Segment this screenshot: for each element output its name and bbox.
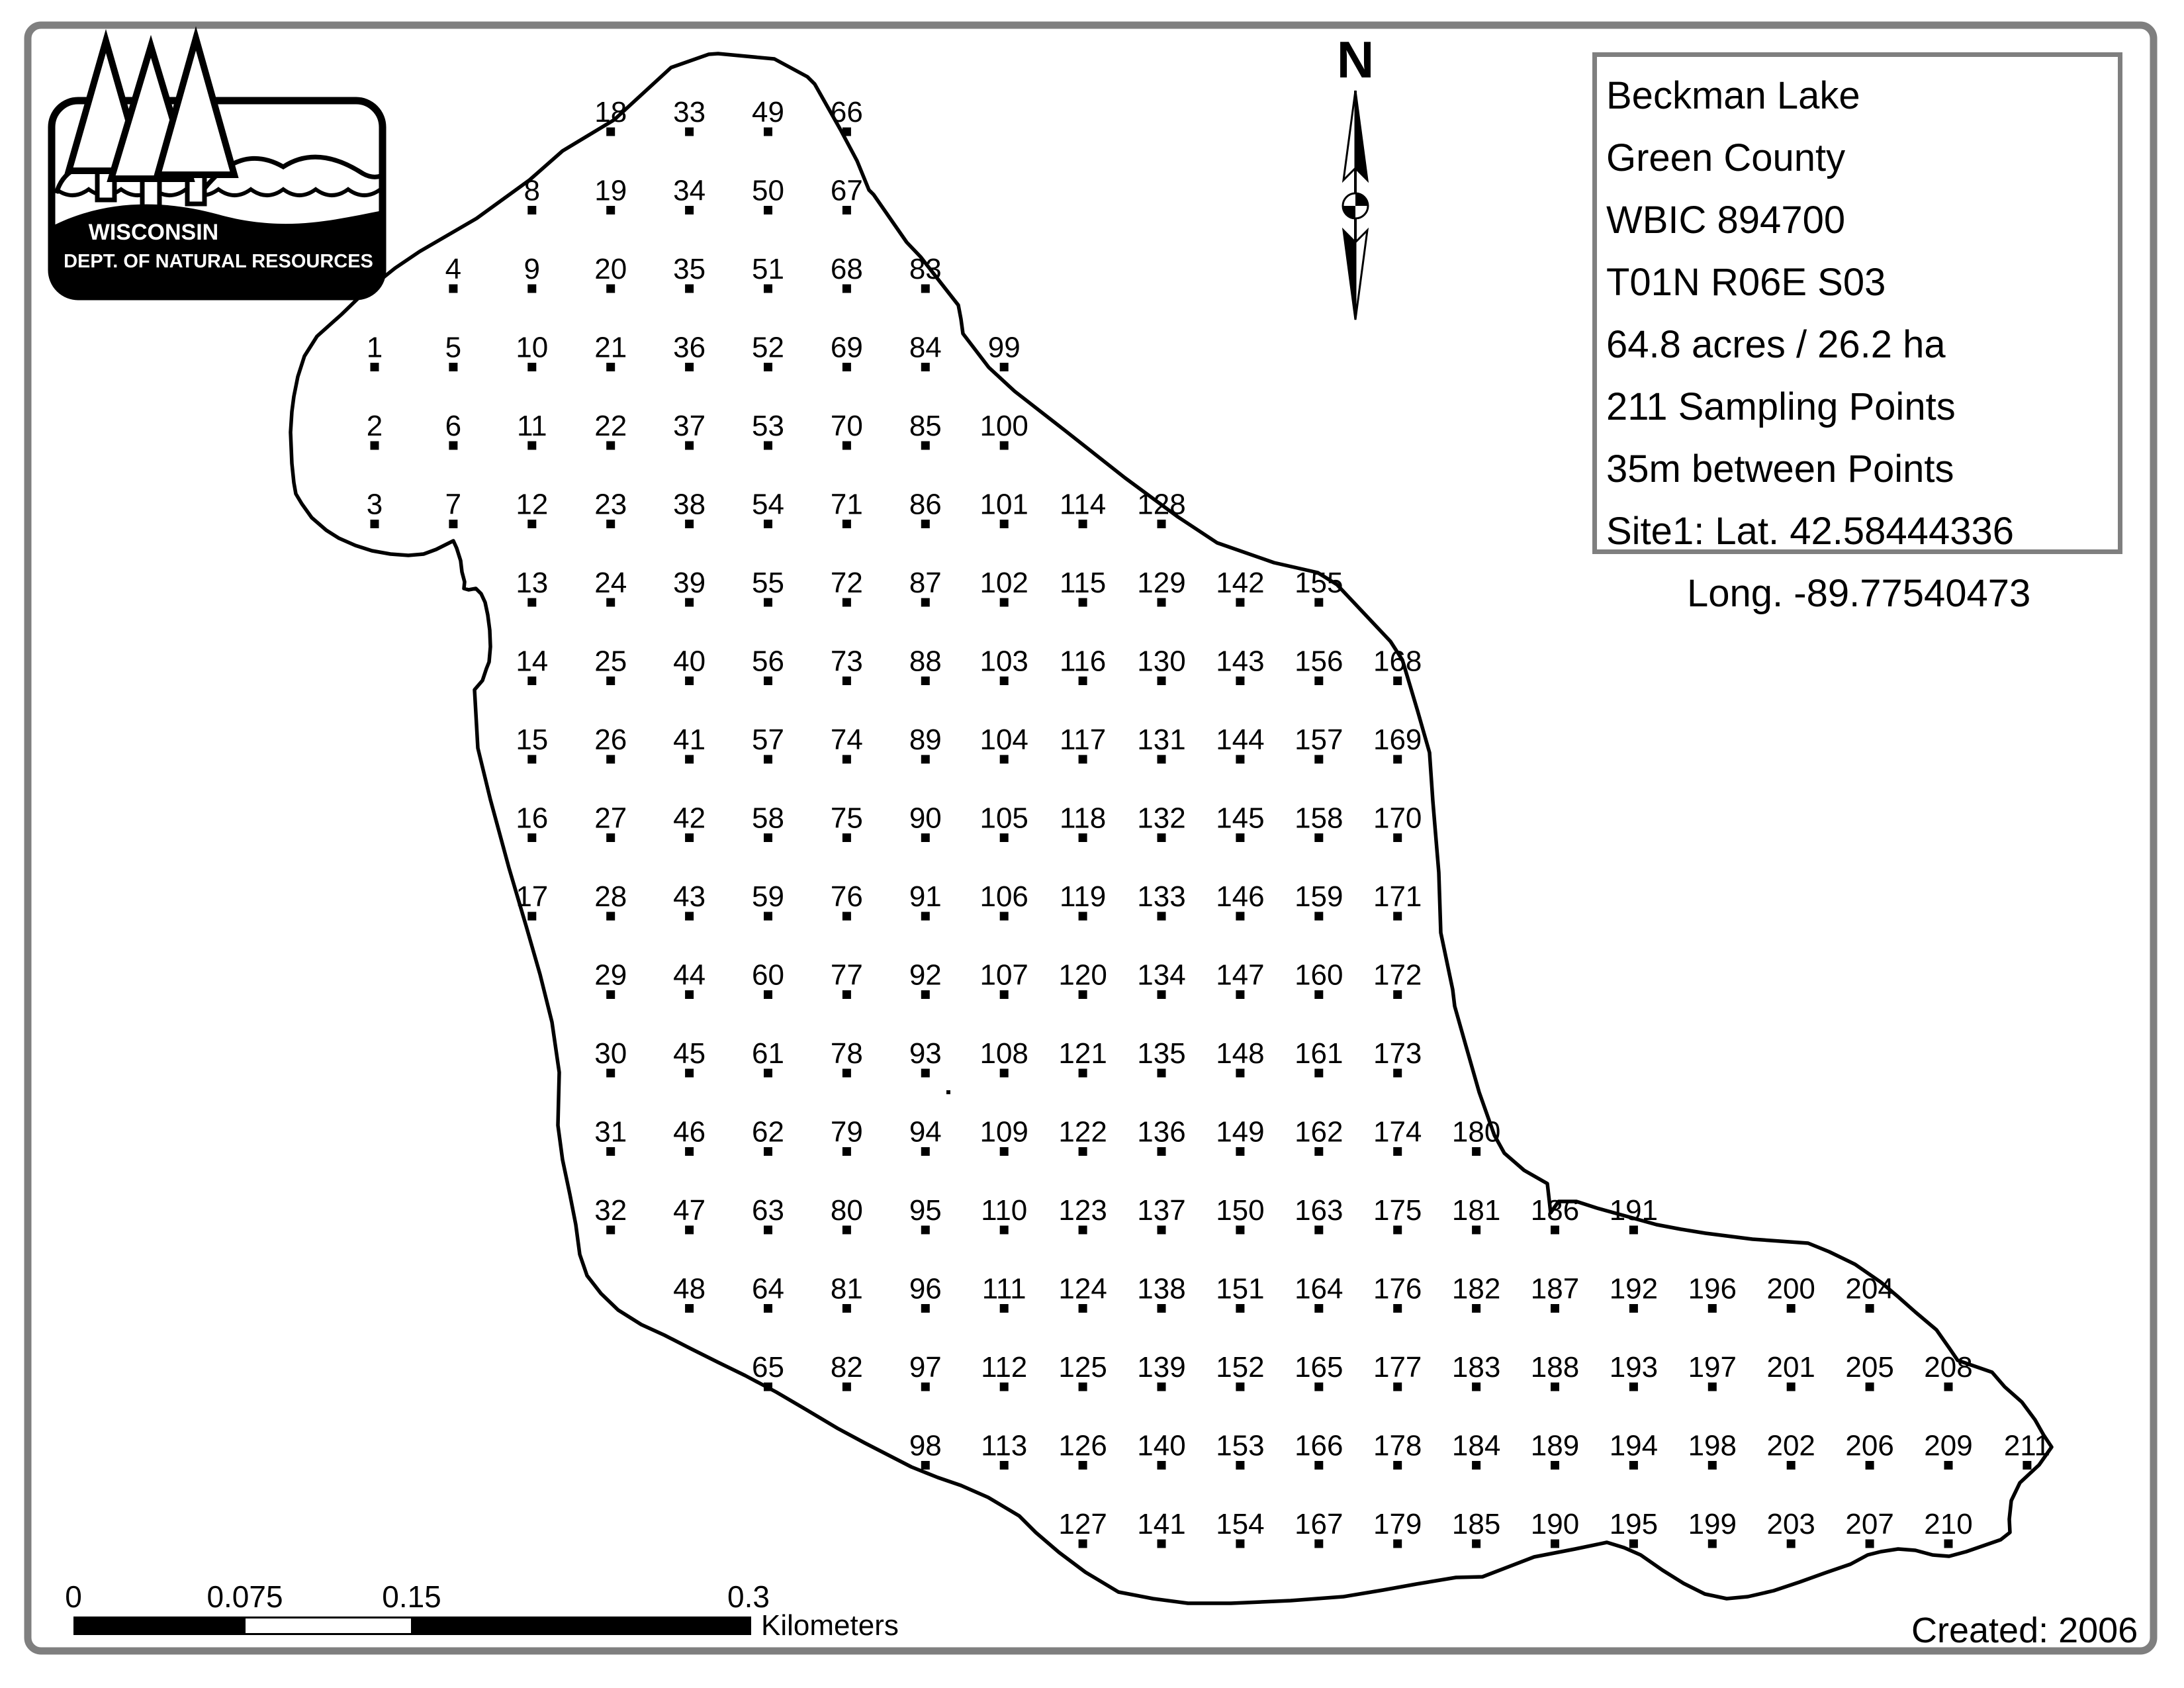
sampling-point: 115 <box>1060 567 1106 607</box>
sampling-point: 37 <box>673 410 705 450</box>
sampling-point: 135 <box>1137 1037 1185 1078</box>
sampling-point-marker <box>1866 1304 1874 1313</box>
sampling-point-label: 65 <box>752 1351 784 1383</box>
sampling-point: 100 <box>979 410 1028 450</box>
sampling-point: 145 <box>1216 802 1264 843</box>
sampling-point-marker <box>1551 1540 1559 1548</box>
logo-text-wisconsin: WISCONSIN <box>89 220 218 245</box>
sampling-point-label: 149 <box>1216 1116 1264 1149</box>
sampling-point-label: 129 <box>1137 567 1185 599</box>
sampling-point-marker <box>606 833 615 842</box>
sampling-point-marker <box>1314 1226 1323 1235</box>
sampling-point-marker <box>1079 598 1087 607</box>
sampling-point-marker <box>1393 1540 1402 1548</box>
sampling-point: 196 <box>1688 1273 1737 1313</box>
sampling-point: 110 <box>981 1194 1027 1235</box>
sampling-point: 55 <box>752 567 784 607</box>
sampling-point: 29 <box>594 959 627 1000</box>
scale-tick-label: 0.075 <box>206 1579 283 1614</box>
sampling-point-marker <box>1158 677 1166 685</box>
sampling-point-label: 184 <box>1452 1430 1500 1462</box>
sampling-point: 69 <box>831 332 863 372</box>
sampling-point-marker <box>1000 1147 1009 1156</box>
sampling-point: 47 <box>673 1194 705 1235</box>
sampling-point-label: 92 <box>909 959 942 992</box>
sampling-point: 142 <box>1216 567 1264 607</box>
sampling-point-marker <box>1472 1147 1480 1156</box>
sampling-point: 42 <box>673 802 705 843</box>
sampling-point: 45 <box>673 1037 705 1078</box>
sampling-point: 203 <box>1766 1508 1815 1548</box>
sampling-point-label: 197 <box>1688 1351 1737 1383</box>
sampling-point: 180 <box>1452 1116 1500 1156</box>
sampling-point: 189 <box>1531 1430 1579 1470</box>
sampling-point: 156 <box>1295 645 1343 686</box>
sampling-point-label: 95 <box>909 1194 942 1227</box>
sampling-point: 20 <box>594 253 627 293</box>
sampling-point: 1 <box>367 332 383 372</box>
sampling-point-label: 21 <box>594 332 627 364</box>
sampling-point-marker <box>1944 1540 1953 1548</box>
sampling-point-label: 138 <box>1137 1273 1185 1305</box>
sampling-point-marker <box>1551 1304 1559 1313</box>
sampling-point: 33 <box>673 96 705 136</box>
sampling-point-label: 98 <box>909 1430 942 1462</box>
sampling-point-label: 51 <box>752 253 784 285</box>
sampling-point-label: 84 <box>909 332 942 364</box>
sampling-point-marker <box>1000 598 1009 607</box>
sampling-point-label: 35 <box>673 253 705 285</box>
sampling-point-marker <box>1236 990 1244 999</box>
sampling-point-marker <box>1787 1383 1796 1391</box>
sampling-point: 86 <box>909 489 942 529</box>
sampling-point: 10 <box>516 332 548 372</box>
sampling-point: 28 <box>594 880 627 921</box>
sampling-point-label: 166 <box>1295 1430 1343 1462</box>
sampling-point-label: 173 <box>1373 1037 1422 1070</box>
sampling-point: 209 <box>1924 1430 1972 1470</box>
sampling-point: 184 <box>1452 1430 1500 1470</box>
sampling-point: 183 <box>1452 1351 1500 1391</box>
info-line: Beckman Lake <box>1606 65 2111 127</box>
sampling-point: 151 <box>1216 1273 1264 1313</box>
sampling-point-marker <box>685 442 694 450</box>
sampling-point-marker <box>764 755 772 764</box>
sampling-point-marker <box>1393 755 1402 764</box>
sampling-point-marker <box>1629 1461 1638 1470</box>
sampling-point-label: 87 <box>909 567 942 599</box>
sampling-point-marker <box>842 598 851 607</box>
sampling-point: 199 <box>1688 1508 1737 1548</box>
sampling-point-marker <box>685 677 694 685</box>
sampling-point: 65 <box>752 1351 784 1391</box>
sampling-point: 2 <box>367 410 383 450</box>
sampling-point: 66 <box>831 96 863 136</box>
sampling-point-label: 123 <box>1058 1194 1107 1227</box>
sampling-point-marker <box>764 1069 772 1078</box>
sampling-point-label: 70 <box>831 410 863 442</box>
sampling-point-label: 161 <box>1295 1037 1343 1070</box>
sampling-point-marker <box>1314 1461 1323 1470</box>
sampling-point-marker <box>1472 1461 1480 1470</box>
sampling-point: 41 <box>673 724 705 764</box>
sampling-point-marker <box>764 598 772 607</box>
sampling-point-label: 160 <box>1295 959 1343 992</box>
sampling-point: 137 <box>1137 1194 1185 1235</box>
sampling-point: 17 <box>516 880 548 921</box>
sampling-point-marker <box>1236 1304 1244 1313</box>
sampling-point-label: 8 <box>524 175 540 207</box>
sampling-point-marker <box>371 442 379 450</box>
sampling-point: 101 <box>979 489 1028 529</box>
sampling-point-marker <box>1236 755 1244 764</box>
sampling-point-marker <box>842 677 851 685</box>
sampling-point-marker <box>685 206 694 214</box>
sampling-point-marker <box>1236 833 1244 842</box>
sampling-point-marker <box>1472 1383 1480 1391</box>
sampling-point-marker <box>527 755 536 764</box>
sampling-point-label: 188 <box>1531 1351 1579 1383</box>
sampling-point-label: 199 <box>1688 1508 1737 1540</box>
sampling-point-label: 13 <box>516 567 548 599</box>
sampling-point-label: 195 <box>1610 1508 1658 1540</box>
sampling-point-marker <box>1158 1461 1166 1470</box>
sampling-point-marker <box>1079 912 1087 921</box>
sampling-point-marker <box>921 990 930 999</box>
sampling-point: 191 <box>1610 1194 1658 1235</box>
sampling-point-marker <box>606 128 615 136</box>
sampling-point: 171 <box>1373 880 1422 921</box>
sampling-point: 178 <box>1373 1430 1422 1470</box>
sampling-point-marker <box>1158 1226 1166 1235</box>
sampling-point-label: 187 <box>1531 1273 1579 1305</box>
sampling-point-marker <box>764 285 772 293</box>
sampling-point-marker <box>1079 1383 1087 1391</box>
sampling-point-label: 32 <box>594 1194 627 1227</box>
sampling-point: 98 <box>909 1430 942 1470</box>
sampling-point-marker <box>1866 1461 1874 1470</box>
sampling-point-label: 170 <box>1373 802 1422 835</box>
sampling-point: 153 <box>1216 1430 1264 1470</box>
sampling-point-label: 38 <box>673 489 705 521</box>
sampling-point-label: 140 <box>1137 1430 1185 1462</box>
sampling-point-label: 139 <box>1137 1351 1185 1383</box>
sampling-point-marker <box>527 285 536 293</box>
sampling-point-marker <box>1314 1304 1323 1313</box>
sampling-point-label: 101 <box>979 489 1028 521</box>
sampling-point-marker <box>449 363 457 371</box>
sampling-point-label: 71 <box>831 489 863 521</box>
sampling-point-label: 97 <box>909 1351 942 1383</box>
sampling-point-marker <box>1000 1226 1009 1235</box>
sampling-point: 207 <box>1845 1508 1893 1548</box>
sampling-point: 46 <box>673 1116 705 1156</box>
sampling-point: 187 <box>1531 1273 1579 1313</box>
sampling-point-label: 54 <box>752 489 784 521</box>
sampling-point-label: 196 <box>1688 1273 1737 1305</box>
sampling-point: 186 <box>1531 1194 1579 1235</box>
sampling-point-label: 175 <box>1373 1194 1422 1227</box>
sampling-point-marker <box>1000 755 1009 764</box>
sampling-point: 23 <box>594 489 627 529</box>
sampling-point: 91 <box>909 880 942 921</box>
sampling-point-marker <box>1000 833 1009 842</box>
sampling-point: 60 <box>752 959 784 1000</box>
info-line: 211 Sampling Points <box>1606 376 2111 438</box>
info-line: Green County <box>1606 127 2111 189</box>
sampling-point: 92 <box>909 959 942 1000</box>
sampling-point: 128 <box>1137 489 1185 529</box>
sampling-point: 185 <box>1452 1508 1500 1548</box>
sampling-point-marker <box>1236 1147 1244 1156</box>
sampling-point-marker <box>842 1069 851 1078</box>
sampling-point-label: 157 <box>1295 724 1343 756</box>
sampling-point-label: 49 <box>752 96 784 128</box>
sampling-point-marker <box>921 442 930 450</box>
sampling-point-label: 178 <box>1373 1430 1422 1462</box>
sampling-point-label: 198 <box>1688 1430 1737 1462</box>
sampling-point: 72 <box>831 567 863 607</box>
sampling-point: 155 <box>1295 567 1343 607</box>
sampling-point-marker <box>842 990 851 999</box>
sampling-point-label: 81 <box>831 1273 863 1305</box>
sampling-point: 82 <box>831 1351 863 1391</box>
sampling-point: 26 <box>594 724 627 764</box>
info-line: T01N R06E S03 <box>1606 252 2111 314</box>
sampling-point: 181 <box>1452 1194 1500 1235</box>
sampling-point: 13 <box>516 567 548 607</box>
sampling-point-marker <box>1393 1147 1402 1156</box>
sampling-point: 81 <box>831 1273 863 1313</box>
sampling-point-label: 147 <box>1216 959 1264 992</box>
north-arrow: N <box>1337 30 1374 320</box>
sampling-point-marker <box>606 912 615 921</box>
sampling-point: 139 <box>1137 1351 1185 1391</box>
sampling-point-label: 205 <box>1845 1351 1893 1383</box>
sampling-point-label: 124 <box>1058 1273 1107 1305</box>
sampling-point-label: 16 <box>516 802 548 835</box>
sampling-point-label: 68 <box>831 253 863 285</box>
sampling-point-label: 66 <box>831 96 863 128</box>
sampling-point: 129 <box>1137 567 1185 607</box>
lake-info-box: Beckman LakeGreen CountyWBIC 894700T01N … <box>1592 52 2122 554</box>
sampling-point-label: 169 <box>1373 724 1422 756</box>
sampling-point-label: 119 <box>1060 880 1106 913</box>
sampling-point-marker <box>606 206 615 214</box>
sampling-point: 36 <box>673 332 705 372</box>
sampling-point-label: 78 <box>831 1037 863 1070</box>
sampling-point-label: 93 <box>909 1037 942 1070</box>
sampling-point-label: 48 <box>673 1273 705 1305</box>
sampling-point-marker <box>842 206 851 214</box>
sampling-point: 160 <box>1295 959 1343 1000</box>
sampling-point-label: 145 <box>1216 802 1264 835</box>
sampling-point-label: 52 <box>752 332 784 364</box>
sampling-point-label: 75 <box>831 802 863 835</box>
sampling-point-label: 104 <box>979 724 1028 756</box>
sampling-point: 197 <box>1688 1351 1737 1391</box>
sampling-point-marker <box>1079 833 1087 842</box>
sampling-point-label: 53 <box>752 410 784 442</box>
sampling-point: 164 <box>1295 1273 1343 1313</box>
sampling-point-marker <box>921 912 930 921</box>
sampling-point-label: 141 <box>1137 1508 1185 1540</box>
sampling-point: 114 <box>1060 489 1106 529</box>
sampling-point-marker <box>685 1226 694 1235</box>
sampling-point: 40 <box>673 645 705 686</box>
sampling-point-label: 24 <box>594 567 627 599</box>
sampling-point-marker <box>685 755 694 764</box>
sampling-point: 177 <box>1373 1351 1422 1391</box>
sampling-point: 192 <box>1610 1273 1658 1313</box>
sampling-point: 126 <box>1058 1430 1107 1470</box>
sampling-point: 193 <box>1610 1351 1658 1391</box>
sampling-point-marker <box>527 598 536 607</box>
sampling-point-marker <box>842 442 851 450</box>
sampling-point: 77 <box>831 959 863 1000</box>
sampling-point-marker <box>606 520 615 528</box>
sampling-point: 148 <box>1216 1037 1264 1078</box>
sampling-point-label: 183 <box>1452 1351 1500 1383</box>
sampling-point: 134 <box>1137 959 1185 1000</box>
sampling-point: 206 <box>1845 1430 1893 1470</box>
sampling-point-marker <box>371 363 379 371</box>
sampling-point-label: 18 <box>594 96 627 128</box>
sampling-point-marker <box>921 1304 930 1313</box>
sampling-point-label: 132 <box>1137 802 1185 835</box>
sampling-point-marker <box>921 1383 930 1391</box>
sampling-point: 61 <box>752 1037 784 1078</box>
sampling-point-label: 58 <box>752 802 784 835</box>
sampling-point: 67 <box>831 175 863 215</box>
sampling-point: 53 <box>752 410 784 450</box>
sampling-point: 38 <box>673 489 705 529</box>
sampling-point: 21 <box>594 332 627 372</box>
sampling-point: 176 <box>1373 1273 1422 1313</box>
sampling-point-label: 118 <box>1060 802 1106 835</box>
sampling-point-marker <box>527 912 536 921</box>
sampling-point: 127 <box>1058 1508 1107 1548</box>
sampling-point: 117 <box>1060 724 1106 764</box>
sampling-point: 202 <box>1766 1430 1815 1470</box>
sampling-point: 194 <box>1610 1430 1658 1470</box>
sampling-point: 150 <box>1216 1194 1264 1235</box>
sampling-point-label: 22 <box>594 410 627 442</box>
sampling-point-label: 67 <box>831 175 863 207</box>
sampling-point-label: 116 <box>1060 645 1106 678</box>
sampling-point-label: 20 <box>594 253 627 285</box>
sampling-point-label: 7 <box>445 489 461 521</box>
scale-tick-label: 0 <box>65 1579 82 1614</box>
sampling-point-marker <box>1079 1226 1087 1235</box>
sampling-point: 14 <box>516 645 548 686</box>
sampling-point: 159 <box>1295 880 1343 921</box>
sampling-point-label: 99 <box>988 332 1021 364</box>
sampling-point-label: 40 <box>673 645 705 678</box>
sampling-point-marker <box>606 442 615 450</box>
sampling-point: 56 <box>752 645 784 686</box>
sampling-point-label: 142 <box>1216 567 1264 599</box>
sampling-point-marker <box>449 285 457 293</box>
sampling-point-marker <box>764 912 772 921</box>
sampling-point: 173 <box>1373 1037 1422 1078</box>
sampling-point-label: 31 <box>594 1116 627 1149</box>
sampling-point-label: 159 <box>1295 880 1343 913</box>
sampling-point-label: 76 <box>831 880 863 913</box>
sampling-point: 208 <box>1924 1351 1972 1391</box>
sampling-point: 89 <box>909 724 942 764</box>
sampling-point-marker <box>1944 1461 1953 1470</box>
sampling-point-label: 59 <box>752 880 784 913</box>
sampling-point-label: 180 <box>1452 1116 1500 1149</box>
sampling-point: 90 <box>909 802 942 843</box>
sampling-point-marker <box>685 363 694 371</box>
sampling-point-label: 112 <box>981 1351 1027 1383</box>
sampling-point-label: 83 <box>909 253 942 285</box>
sampling-point-marker <box>1158 1147 1166 1156</box>
sampling-point-label: 23 <box>594 489 627 521</box>
sampling-point: 109 <box>979 1116 1028 1156</box>
sampling-point-marker <box>764 1383 772 1391</box>
sampling-point-marker <box>685 1304 694 1313</box>
sampling-point: 152 <box>1216 1351 1264 1391</box>
sampling-point-marker <box>921 520 930 528</box>
sampling-point-label: 56 <box>752 645 784 678</box>
sampling-point-label: 190 <box>1531 1508 1579 1540</box>
sampling-point: 34 <box>673 175 705 215</box>
sampling-point-label: 91 <box>909 880 942 913</box>
sampling-point-marker <box>842 1147 851 1156</box>
sampling-point-marker <box>764 206 772 214</box>
sampling-point-marker <box>842 363 851 371</box>
sampling-point-marker <box>764 677 772 685</box>
sampling-point-label: 82 <box>831 1351 863 1383</box>
sampling-point-marker <box>527 206 536 214</box>
sampling-point-label: 19 <box>594 175 627 207</box>
sampling-point-label: 57 <box>752 724 784 756</box>
sampling-point: 43 <box>673 880 705 921</box>
sampling-point: 157 <box>1295 724 1343 764</box>
sampling-point-label: 204 <box>1845 1273 1893 1305</box>
sampling-point-marker <box>1000 1383 1009 1391</box>
sampling-point: 97 <box>909 1351 942 1391</box>
sampling-point-label: 64 <box>752 1273 784 1305</box>
sampling-point-marker <box>1866 1540 1874 1548</box>
sampling-point-label: 94 <box>909 1116 942 1149</box>
sampling-point-marker <box>1158 1069 1166 1078</box>
sampling-point: 179 <box>1373 1508 1422 1548</box>
sampling-point-marker <box>1551 1461 1559 1470</box>
sampling-point: 58 <box>752 802 784 843</box>
sampling-point-marker <box>1158 520 1166 528</box>
scale-bar-white-segment <box>245 1618 412 1634</box>
sampling-point-label: 6 <box>445 410 461 442</box>
sampling-point-label: 202 <box>1766 1430 1815 1462</box>
sampling-point-label: 137 <box>1137 1194 1185 1227</box>
sampling-point-label: 136 <box>1137 1116 1185 1149</box>
sampling-point-label: 28 <box>594 880 627 913</box>
sampling-point: 25 <box>594 645 627 686</box>
sampling-point: 85 <box>909 410 942 450</box>
sampling-point-label: 209 <box>1924 1430 1972 1462</box>
sampling-point: 84 <box>909 332 942 372</box>
info-line: Long. -89.77540473 <box>1606 563 2111 625</box>
sampling-point-marker <box>527 833 536 842</box>
sampling-point-label: 134 <box>1137 959 1185 992</box>
sampling-point: 30 <box>594 1037 627 1078</box>
sampling-point-marker <box>1314 833 1323 842</box>
sampling-point-marker <box>1000 1069 1009 1078</box>
